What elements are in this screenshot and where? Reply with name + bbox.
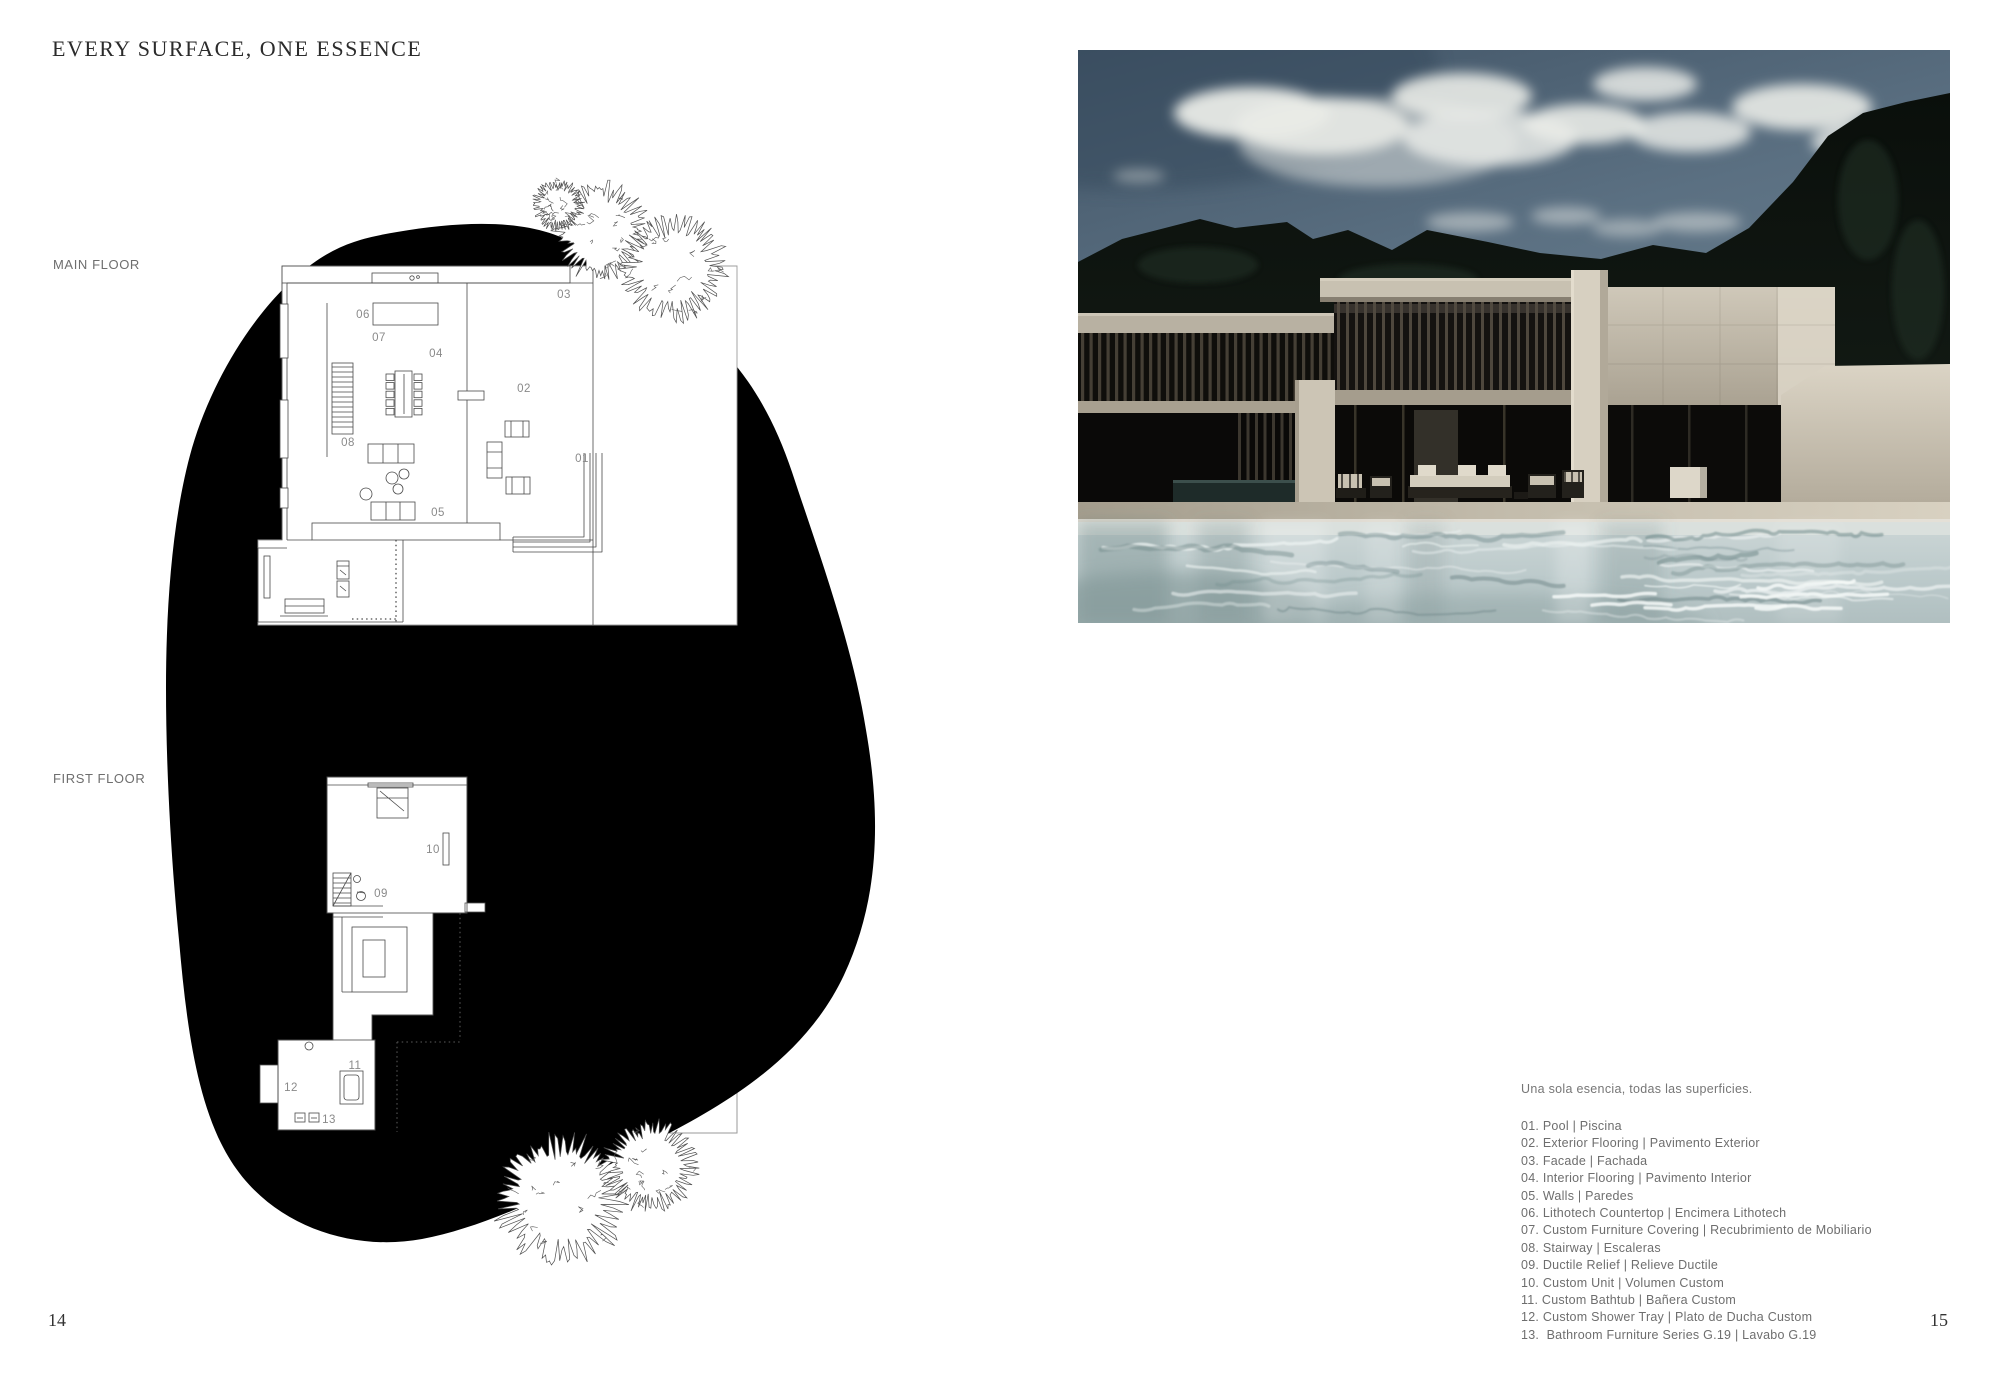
legend-caption: Una sola esencia, todas las superficies. [1521,1082,1961,1096]
plan-callout-04: 04 [429,348,443,360]
main-floor-area [258,266,737,625]
plan-callout-07: 07 [372,332,386,344]
boundary-wall [1781,364,1950,502]
exterior-render-photo [1078,50,1950,623]
page-number-left: 14 [48,1310,66,1331]
pool [1078,519,1950,623]
legend-item: 09. Ductile Relief | Relieve Ductile [1521,1257,1961,1274]
legend-item: 01. Pool | Piscina [1521,1118,1961,1135]
legend-item: 13. Bathroom Furniture Series G.19 | Lav… [1521,1327,1961,1344]
first-floor-annex [260,1065,278,1103]
plan-callout-02: 02 [517,383,531,395]
legend-item: 06. Lithotech Countertop | Encimera Lith… [1521,1205,1961,1222]
plan-callout-03: 03 [557,289,571,301]
plan-callout-11: 11 [349,1060,362,1072]
legend-item: 08. Stairway | Escaleras [1521,1240,1961,1257]
page-number-right: 15 [1930,1310,1948,1331]
plan-callout-13: 13 [322,1114,336,1126]
plan-callout-09: 09 [374,888,388,900]
legend-item: 04. Interior Flooring | Pavimento Interi… [1521,1170,1961,1187]
legend-list: 01. Pool | Piscina02. Exterior Flooring … [1521,1118,1961,1344]
legend-item: 10. Custom Unit | Volumen Custom [1521,1275,1961,1292]
plan-callout-12: 12 [284,1082,298,1094]
legend-item: 07. Custom Furniture Covering | Recubrim… [1521,1222,1961,1239]
pillar [1571,270,1608,502]
brochure-spread: EVERY SURFACE, ONE ESSENCE MAIN FLOOR FI… [0,0,2000,1384]
plan-callout-10: 10 [426,844,440,856]
legend-item: 02. Exterior Flooring | Pavimento Exteri… [1521,1135,1961,1152]
plan-callout-01: 01 [575,453,589,465]
legend-item: 12. Custom Shower Tray | Plato de Ducha … [1521,1309,1961,1326]
plan-callout-08: 08 [341,437,355,449]
plan-callout-05: 05 [431,507,445,519]
legend-item: 05. Walls | Paredes [1521,1188,1961,1205]
plan-callout-06: 06 [356,309,370,321]
legend-block: Una sola esencia, todas las superficies.… [1521,1082,1961,1344]
legend-item: 11. Custom Bathtub | Bañera Custom [1521,1292,1961,1309]
first-floor-tab [465,903,485,912]
legend-item: 03. Facade | Fachada [1521,1153,1961,1170]
